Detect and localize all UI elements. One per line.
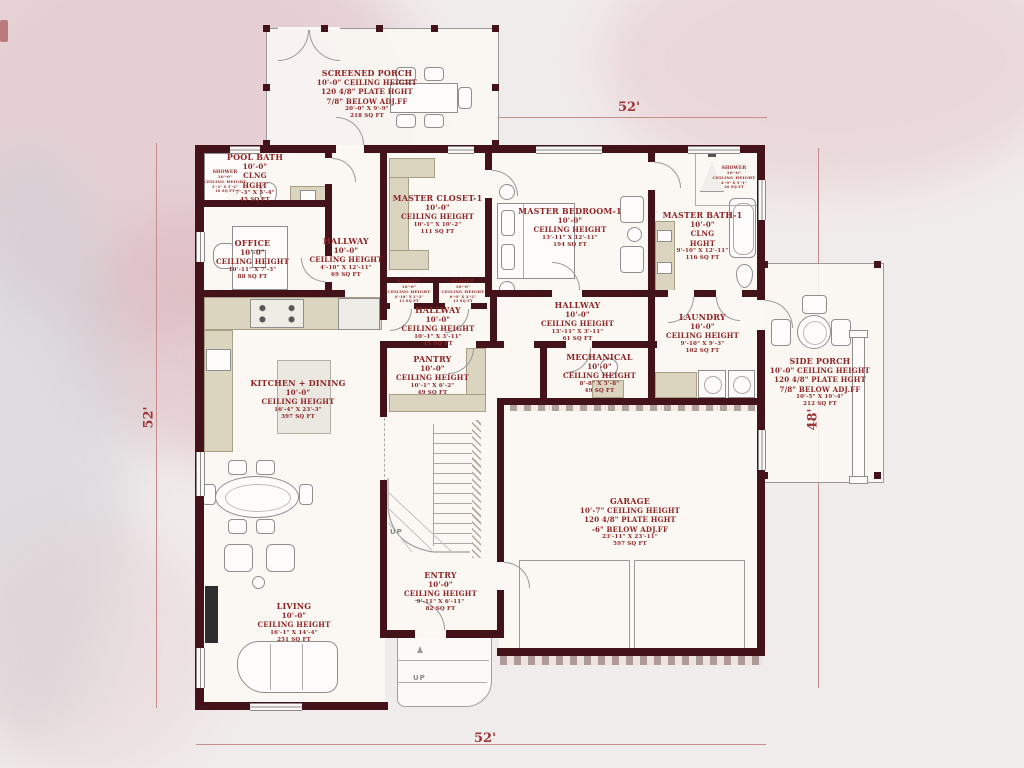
room-label-line: CEILING HEIGHT xyxy=(563,371,636,380)
room-label-line: 397 SQ FT xyxy=(281,414,315,421)
dining-chair xyxy=(228,519,247,534)
room-label-office: OFFICE10'-0"CEILING HEIGHT10'-11" X 7'-3… xyxy=(205,238,300,281)
opening-kitchen xyxy=(345,290,380,297)
room-label-line: MASTER BEDROOM-1 xyxy=(518,206,622,216)
room-label-line: 102 SQ FT xyxy=(686,348,720,355)
dining-table-inner xyxy=(225,484,291,512)
room-label-line: 45 SQ FT xyxy=(240,197,270,204)
front-stoop xyxy=(397,638,492,707)
window xyxy=(688,146,740,154)
room-label-line: 16'-1" X 14'-4" xyxy=(270,630,318,637)
room-label-line: 116 SQ FT xyxy=(686,255,720,262)
room-label-master-bedroom: MASTER BEDROOM-110'-0"CEILING HEIGHT13'-… xyxy=(510,206,630,249)
room-label-line: 120 4/8" PLATE HGHT xyxy=(321,87,413,96)
room-label-garage: GARAGE10'-7" CEILING HEIGHT120 4/8" PLAT… xyxy=(570,496,690,548)
porch-post xyxy=(376,25,383,32)
room-label-line: OFFICE xyxy=(235,238,271,248)
sink xyxy=(657,262,672,274)
room-label-line: HGHT xyxy=(690,239,715,248)
room-label-line: CEILING HEIGHT xyxy=(404,589,477,598)
porch-chair xyxy=(831,319,851,346)
room-label-pantry: PANTRY10'-0"CEILING HEIGHT10'-1" X 6'-2"… xyxy=(390,354,475,397)
room-label-line: 10'-1" X 6'-2" xyxy=(411,383,455,390)
room-label-line: LIVING xyxy=(277,601,312,611)
kitchen-sink xyxy=(206,349,231,371)
window xyxy=(448,146,474,154)
room-label-line: 20 SQ FT xyxy=(724,185,744,189)
room-label-line: CEILING HEIGHT xyxy=(257,620,330,629)
room-label-line: 82 SQ FT xyxy=(426,606,456,613)
porch-post xyxy=(263,25,270,32)
porch-post xyxy=(874,261,881,268)
door-gap-master-closet xyxy=(485,170,492,198)
watercolor-blob xyxy=(0,520,220,768)
porch-post xyxy=(263,84,270,91)
door-gap-laundry-west xyxy=(668,290,694,297)
room-label-closet-a: CLOSET10'-0"CEILING HEIGHT4'-10" X 2'-2"… xyxy=(386,280,432,303)
room-label-line: 13'-11" X 12'-11" xyxy=(542,235,598,242)
porch-railing-cap xyxy=(849,330,868,338)
room-label-line: 23'-11" X 23'-11" xyxy=(602,534,658,541)
paint-mark xyxy=(0,20,8,42)
wall-kitchen-east-lower xyxy=(380,480,387,638)
room-label-line: HALLWAY xyxy=(323,236,369,246)
porch-post xyxy=(492,25,499,32)
room-label-living: LIVING10'-0"CEILING HEIGHT16'-1" X 14'-4… xyxy=(248,601,340,644)
room-label-line: 10'-0" CEILING HEIGHT xyxy=(770,366,870,375)
room-label-side-porch: SIDE PORCH10'-0" CEILING HEIGHT120 4/8" … xyxy=(768,356,872,408)
room-label-line: MASTER CLOSET-1 xyxy=(393,193,483,203)
stair-rail-dashed xyxy=(384,418,387,482)
room-label-line: 16 SQ FT xyxy=(215,189,235,193)
room-label-line: 10'-0" xyxy=(690,220,715,229)
room-label-line: 10'-0" xyxy=(428,580,453,589)
room-label-line: CEILING HEIGHT xyxy=(401,324,474,333)
room-label-line: -6" BELOW ADJ.FF xyxy=(592,525,668,534)
room-label-line: 212 SQ FT xyxy=(803,401,837,408)
room-label-line: HALLWAY xyxy=(415,305,461,315)
room-label-line: CEILING HEIGHT xyxy=(216,257,289,266)
room-label-line: 10'-0" xyxy=(690,322,715,331)
room-label-line: 20'-0" X 9'-9" xyxy=(345,106,389,113)
closet-shelf xyxy=(389,158,435,178)
room-label-line: 10'-0" xyxy=(282,611,307,620)
room-label-line: 10'-0" xyxy=(565,310,590,319)
room-label-line: 9'-10" X 9'-3" xyxy=(681,341,725,348)
porch-post xyxy=(761,261,768,268)
room-label-line: 49 SQ FT xyxy=(585,388,615,395)
porch-chair xyxy=(802,295,827,314)
room-label-line: 251 SQ FT xyxy=(277,637,311,644)
porch-post xyxy=(492,84,499,91)
room-label-line: 49 SQ FT xyxy=(418,390,448,397)
dining-chair xyxy=(256,519,275,534)
room-label-line: 8'-8" X 5'-8" xyxy=(580,381,620,388)
dimension-bottom: 52' xyxy=(474,731,496,746)
room-label-line: 13 SQ FT xyxy=(453,299,473,303)
room-label-line: MASTER BATH-1 xyxy=(663,210,743,220)
room-label-line: 10'-0" xyxy=(558,216,583,225)
room-label-laundry: LAUNDRY10'-0"CEILING HEIGHT9'-10" X 9'-3… xyxy=(655,312,750,355)
room-label-line: 120 4/8" PLATE HGHT xyxy=(584,515,676,524)
garage-door-panel xyxy=(519,560,630,650)
room-label-line: 10'-0" xyxy=(420,364,445,373)
room-label-line: 10'-0" xyxy=(425,203,450,212)
sofa-cushion-line xyxy=(302,644,303,690)
floor-plan-canvas: UP UP 52' 52' 48' 52' SCREENED PORCH10'-… xyxy=(0,0,1024,768)
wall-garage-bottom xyxy=(497,648,765,656)
wall-entry-bottom xyxy=(446,630,504,638)
porch-round-table-inner xyxy=(803,321,827,345)
room-label-line: 10'-0" xyxy=(334,246,359,255)
wall-kitchen-east-mid xyxy=(380,341,387,417)
room-label-line: 10'-0" xyxy=(426,315,451,324)
room-label-hallway-east: HALLWAY10'-0"CEILING HEIGHT13'-11" X 3'-… xyxy=(530,300,625,343)
room-label-line: 11 SQ FT xyxy=(399,299,419,303)
room-label-line: 10'-0" xyxy=(587,362,612,371)
room-label-line: 10'-0" xyxy=(240,248,265,257)
porch-post xyxy=(761,472,768,479)
room-label-line: CEILING HEIGHT xyxy=(401,212,474,221)
window xyxy=(758,430,766,470)
room-label-line: 597 SQ FT xyxy=(613,541,647,548)
room-label-master-bath: MASTER BATH-110'-0"CLNGHGHT9'-10" X 12'-… xyxy=(660,210,745,262)
room-label-line: 111 SQ FT xyxy=(421,229,455,236)
shower-wall-line xyxy=(695,150,696,206)
dryer-door xyxy=(733,376,751,394)
porch-post xyxy=(263,140,270,147)
room-label-line: 7/8" BELOW ADJ.FF xyxy=(780,385,861,394)
room-label-line: CEILING HEIGHT xyxy=(533,225,606,234)
window xyxy=(250,703,302,711)
room-label-line: CEILING HEIGHT xyxy=(396,373,469,382)
door-gap-porch xyxy=(336,145,364,153)
room-label-line: CLNG xyxy=(691,229,715,238)
stair-winder xyxy=(386,478,470,556)
room-label-line: KITCHEN + DINING xyxy=(250,378,345,388)
refrigerator xyxy=(338,298,380,330)
armchair xyxy=(620,246,644,273)
door-gap-front-door xyxy=(415,630,446,638)
armchair xyxy=(266,544,295,572)
door-gap-bath xyxy=(648,162,655,190)
room-label-hallway-upper: HALLWAY10'-0"CEILING HEIGHT4'-10" X 12'-… xyxy=(300,236,392,279)
room-label-line: POOL BATH xyxy=(227,152,283,162)
room-label-line: 13'-11" X 3'-11" xyxy=(552,329,604,336)
room-label-mechanical: MECHANICAL10'-0"CEILING HEIGHT8'-8" X 5'… xyxy=(552,352,647,395)
room-label-line: 10'-0" xyxy=(286,388,311,397)
room-label-line: ENTRY xyxy=(424,570,456,580)
room-label-line: SCREENED PORCH xyxy=(322,68,412,78)
room-label-shower-pool: SHOWER10'-0"CEILING HEIGHT3'-2" X 5'-2"1… xyxy=(202,170,248,193)
wall-office-bottom xyxy=(195,290,345,297)
door-gap-garage-entry xyxy=(497,562,504,590)
tv xyxy=(205,586,218,643)
room-label-line: GARAGE xyxy=(610,496,650,506)
washer-door xyxy=(704,376,722,394)
dimension-top: 52' xyxy=(618,100,640,115)
room-label-line: PANTRY xyxy=(413,354,451,364)
room-label-line: 69 SQ FT xyxy=(331,272,361,279)
room-label-line: 10'-11" X 7'-3" xyxy=(229,267,277,274)
dining-chair xyxy=(256,460,275,475)
closet-shelf xyxy=(389,250,429,270)
room-label-closet-b: CLOSET10'-0"CEILING HEIGHT6'-0" X 2'-2"1… xyxy=(440,280,486,303)
room-label-line: 45 SQ FT xyxy=(423,341,453,348)
room-label-line: 194 SQ FT xyxy=(553,242,587,249)
garage-door-panel xyxy=(634,560,745,650)
room-label-line: 61 SQ FT xyxy=(563,336,593,343)
room-label-line: HALLWAY xyxy=(555,300,601,310)
dining-chair xyxy=(299,484,313,505)
room-label-line: 10'-1" X 3'-11" xyxy=(414,334,462,341)
porch-chair xyxy=(458,87,472,109)
wall-mech-left xyxy=(540,348,547,400)
up-arrow-icon xyxy=(417,646,423,653)
room-label-line: CEILING HEIGHT xyxy=(541,319,614,328)
window xyxy=(196,232,205,262)
door-gap-laundry-east xyxy=(716,290,742,297)
sofa xyxy=(237,641,338,693)
room-label-shower-master: SHOWER10'-0"CEILING HEIGHT4'-0" X 5'-1"2… xyxy=(710,166,758,189)
room-label-line: 4'-10" X 12'-11" xyxy=(320,265,372,272)
wall-garage-top xyxy=(497,398,765,405)
room-label-line: 9'-10" X 12'-11" xyxy=(677,248,729,255)
porch-post xyxy=(874,472,881,479)
dimension-right: 48' xyxy=(806,408,821,430)
room-label-master-closet: MASTER CLOSET-110'-0"CEILING HEIGHT10'-1… xyxy=(390,193,485,236)
door-gap-bedroom xyxy=(552,290,582,297)
stoop-step-line xyxy=(398,682,487,683)
room-label-hallway-west: HALLWAY10'-0"CEILING HEIGHT10'-1" X 3'-1… xyxy=(392,305,484,348)
window xyxy=(196,648,205,688)
masonry-strip xyxy=(510,405,755,411)
wall-garage-left xyxy=(497,398,504,638)
room-label-line: LAUNDRY xyxy=(679,312,726,322)
sofa-cushion-line xyxy=(270,644,271,690)
room-label-line: SIDE PORCH xyxy=(790,356,851,366)
room-label-line: CEILING HEIGHT xyxy=(261,397,334,406)
room-label-entry: ENTRY10'-0"CEILING HEIGHT9'-11" X 6'-11"… xyxy=(398,570,483,613)
window xyxy=(536,146,602,154)
room-label-line: CEILING HEIGHT xyxy=(309,255,382,264)
porch-post xyxy=(431,25,438,32)
room-label-line: 10'-7" CEILING HEIGHT xyxy=(580,506,680,515)
stoop-up-label: UP xyxy=(413,674,426,682)
room-label-line: 9'-11" X 6'-11" xyxy=(417,599,465,606)
room-label-line: 218 SQ FT xyxy=(350,113,384,120)
wall-stairwell xyxy=(490,290,497,348)
room-label-line: 7/8" BELOW ADJ.FF xyxy=(327,97,408,106)
armchair xyxy=(224,544,253,572)
wall-left xyxy=(195,145,204,710)
dimension-left: 52' xyxy=(142,406,157,428)
room-label-line: 10'-5" X 19'-4" xyxy=(796,394,844,401)
stoop-step-line xyxy=(398,660,489,661)
window xyxy=(758,180,766,220)
masonry-strip xyxy=(500,656,762,665)
stair-wall-hatch xyxy=(472,420,481,558)
window xyxy=(196,452,205,496)
room-label-line: CEILING HEIGHT xyxy=(666,331,739,340)
laundry-counter xyxy=(655,372,697,398)
porch-railing-cap xyxy=(849,476,868,484)
room-label-screened-porch: SCREENED PORCH10'-0" CEILING HEIGHT120 4… xyxy=(297,68,437,120)
room-label-line: 10'-0" CEILING HEIGHT xyxy=(317,78,417,87)
room-label-kitchen-dining: KITCHEN + DINING10'-0"CEILING HEIGHT16'-… xyxy=(248,378,348,421)
room-label-line: 16'-4" X 23'-3" xyxy=(274,407,322,414)
room-label-line: MECHANICAL xyxy=(566,352,632,362)
stove xyxy=(250,299,304,328)
door-gap-side-porch xyxy=(757,300,765,330)
dimension-line-top xyxy=(495,117,767,118)
dining-chair xyxy=(228,460,247,475)
room-label-line: 88 SQ FT xyxy=(238,274,268,281)
room-label-line: 120 4/8" PLATE HGHT xyxy=(774,375,866,384)
stair-up-label: UP xyxy=(390,528,403,536)
wall-entry-bottom xyxy=(383,630,415,638)
door-gap-poolbath xyxy=(325,158,332,184)
room-label-line: 10'-1" X 10'-2" xyxy=(414,222,462,229)
porch-post xyxy=(492,140,499,147)
side-table xyxy=(252,576,265,589)
